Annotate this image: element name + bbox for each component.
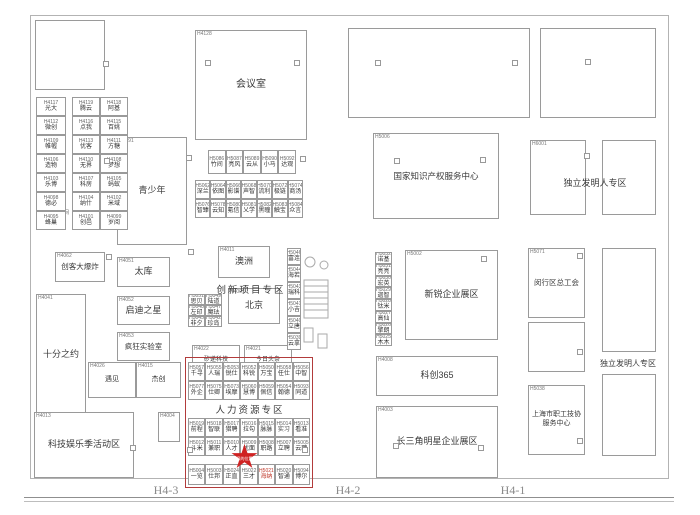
booth-cell: H5070流利 [257, 180, 272, 199]
empty-room-top-right [540, 28, 656, 118]
booth-name: 智臻 [197, 208, 209, 215]
door-marker-icon [577, 253, 583, 259]
booth-name: 触宝 [274, 208, 286, 215]
booth-cell: H5087亮风 [226, 150, 244, 174]
booth-name: 科锐 [243, 371, 255, 378]
room-name: 遇见 [89, 363, 135, 397]
door-marker-icon [300, 156, 306, 162]
booth-name: 氪信 [228, 208, 240, 215]
booth-name: 依图 [212, 189, 224, 196]
booth-name: 流利 [258, 189, 270, 196]
booth-cell: H5053锐仕 [223, 362, 240, 381]
booth-name: 博尔 [295, 474, 307, 481]
booth-name: 云从 [246, 162, 258, 169]
room-name: 疯狂实验室 [118, 333, 169, 360]
booth-cell: H5049陆道 [205, 294, 222, 305]
booth-grid-left-double: H4119腾云H4118阿基H4116点我H4115百姚H4113优客H4111… [72, 97, 128, 230]
room-name: 青少年 [118, 138, 186, 244]
booth-cell: H5030宏英 [375, 276, 392, 288]
booth-cell: H5042珍岛 [205, 316, 222, 327]
booth-name: 猎聘 [226, 427, 238, 434]
booth-cell: H4098德必 [36, 192, 66, 211]
door-marker-icon [577, 349, 583, 355]
booth-name: 声智 [243, 189, 255, 196]
booth-grid-hr-top: H5057千寻H5055人瑞H5053锐仕H5052科锐H5050万宝H5058… [188, 362, 310, 400]
booth-name: 看准 [295, 427, 307, 434]
booth-cell: H4095蜂巢 [36, 211, 66, 230]
booth-cell: H4101创邑 [72, 211, 100, 230]
booth-name: 蜂巢 [45, 220, 57, 227]
door-marker-icon [205, 60, 211, 66]
booth-cell: H5032诺基 [375, 252, 392, 264]
room-name: 上海市职工技协服务中心 [529, 386, 584, 454]
booth-name: 正直 [226, 474, 238, 481]
booth-cell: H5083触宝 [272, 199, 287, 218]
booth-grid-center-row: H5086竹间H5087亮风H5089云从H5090小马H5092达观 [208, 150, 296, 174]
booth-cell: H5014实习 [275, 418, 292, 437]
door-marker-icon [584, 153, 590, 159]
room-name: 国家知识产权服务中心 [374, 134, 498, 218]
booth-name: 非夕 [190, 321, 202, 327]
booth-name: 点我 [80, 125, 92, 132]
booth-name: 纳什 [80, 201, 92, 208]
booth-cell: H5043瑞科 [287, 282, 301, 299]
room-name: 澳洲 [219, 247, 269, 277]
booth-cell: H4113优客 [72, 135, 100, 154]
empty-room-right-col-b [602, 374, 656, 456]
booth-name: 智联 [208, 427, 220, 434]
booth-cell: H5011兼职 [205, 437, 222, 456]
booth-cell: H5025木木 [375, 334, 392, 346]
booth-cell: H4106造物 [36, 154, 66, 173]
booth-cell: H5084众言 [288, 199, 303, 218]
booth-name: 阿基 [108, 106, 120, 113]
booth-cell: H5046富连 [287, 248, 301, 265]
booth-name: 锐仕 [226, 371, 238, 378]
room-name: 杰创 [137, 363, 180, 397]
room-meet: H4026 遇见 [88, 362, 136, 398]
booth-cell: H5054翰德 [275, 381, 292, 400]
booth-name: 木木 [377, 340, 389, 346]
booth-cell: H5029迦智 [375, 287, 392, 299]
room-name: 科创365 [377, 357, 497, 395]
booth-name: 帷幄 [45, 144, 57, 151]
booth-cell: H5018智联 [205, 418, 222, 437]
room-name: 闵行区总工会 [529, 249, 584, 317]
booth-name: 岁阅 [108, 220, 120, 227]
booth-cell: H5074商汤 [288, 180, 303, 199]
booth-name: 职路 [260, 446, 272, 453]
booth-cell: H5077外企 [188, 381, 205, 400]
booth-cell: H5086竹间 [208, 150, 226, 174]
booth-cell: H5062深兰 [195, 180, 210, 199]
room-name: 会议室 [196, 31, 306, 139]
booth-name: 创邑 [80, 220, 92, 227]
exhibition-floor-plan: H6001 H4128 会议室 H4091 青少年 H4062 创客大爆炸 H4… [0, 0, 700, 515]
booth-name: 云知 [212, 208, 224, 215]
booth-cell: H5026擎朗 [375, 323, 392, 335]
booth-cell: H5094博尔 [293, 464, 310, 485]
booth-name: 立唐 [288, 324, 300, 331]
door-marker-icon [585, 59, 591, 65]
booth-name: 乐博 [45, 182, 57, 189]
booth-cell: H5045非夕 [188, 316, 205, 327]
booth-name: 云拿 [288, 341, 300, 348]
booth-name: 众言 [289, 208, 301, 215]
door-marker-icon [106, 254, 112, 260]
door-marker-icon [512, 60, 518, 66]
room-crazy-lab: H4053 疯狂实验室 [117, 332, 170, 361]
booth-cell: H5022三才 [240, 464, 257, 485]
independent-inventor-zone-label: 独立发明人专区 [535, 176, 655, 189]
booth-cell: H4104纳什 [72, 192, 100, 211]
room-new-star-zone: H5002 新锐企业展区 [405, 250, 498, 340]
booth-cell: H5039云拿 [287, 333, 301, 350]
booth-name: 腾云 [80, 106, 92, 113]
independent-inventor-zone-label-2: 独立发明人专区 [595, 358, 661, 369]
booth-cell: H5090小马 [261, 150, 279, 174]
booth-name: 万宝 [260, 371, 272, 378]
gate-label-h4-1: H4-1 [483, 483, 543, 498]
booth-name: 外企 [191, 390, 203, 397]
door-marker-icon [104, 158, 110, 164]
booth-cell: H5060慧博 [240, 381, 257, 400]
booth-grid-left-column: H4117光大H4112微创H4109帷幄H4106造物H4103乐博H4098… [36, 97, 66, 230]
booth-cell: H4115百姚 [100, 116, 128, 135]
booth-name: 拉勾 [243, 427, 255, 434]
booth-name: 人才 [226, 446, 238, 453]
booth-cell: H4103乐博 [36, 173, 66, 192]
booth-cell: H5040立唐 [287, 316, 301, 333]
booth-name: 小马 [264, 162, 276, 169]
booth-name: 造物 [45, 163, 57, 170]
booth-cell: H5081乂学 [241, 199, 256, 218]
room-maker-bigbang: H4062 创客大爆炸 [55, 252, 105, 282]
room-meeting: H4128 会议室 [195, 30, 307, 140]
booth-name: 实习 [278, 427, 290, 434]
booth-cell: H5066影谱 [226, 180, 241, 199]
booth-cell: H5092达观 [278, 150, 296, 174]
room-workers-service-center: H5038 上海市职工技协服务中心 [528, 385, 585, 455]
booth-name: 影谱 [228, 189, 240, 196]
booth-cell: H4119腾云 [72, 97, 100, 116]
booth-name: 任仕 [278, 371, 290, 378]
booth-grid-right-strip: H5032诺基H5031亮亮H5030宏英H5029迦智H5028钛米H5027… [375, 252, 392, 346]
booth-name: 光大 [45, 106, 57, 113]
booth-cell: H5020智通 [275, 464, 292, 485]
booth-cell: H5076智臻 [195, 199, 210, 218]
booth-name: 前程 [191, 427, 203, 434]
door-marker-icon [294, 60, 300, 66]
booth-name: 微创 [45, 125, 57, 132]
booth-name: 兼职 [208, 446, 220, 453]
door-marker-icon [103, 61, 109, 67]
booth-name: 仕邦 [208, 474, 220, 481]
booth-name: 无界 [80, 163, 92, 170]
booth-name: 深兰 [197, 189, 209, 196]
booth-cell: H5078云知 [210, 199, 225, 218]
door-marker-icon [481, 256, 487, 262]
booth-cell: H5058任仕 [275, 362, 292, 381]
room-ip-service-center: H5006 国家知识产权服务中心 [373, 133, 499, 219]
booth-grid-hr-middle: H5019前程H5018智联H5017猎聘H5016拉勾H5015脉脉H5014… [188, 418, 310, 456]
booth-name: 智通 [278, 474, 290, 481]
booth-cell: H5004一览 [188, 464, 205, 485]
door-marker-icon [187, 447, 193, 453]
door-marker-icon [186, 155, 192, 161]
booth-cell: H5089云从 [243, 150, 261, 174]
booth-cell: H5075仕卿 [205, 381, 222, 400]
booth-name: 翰德 [278, 390, 290, 397]
booth-name: 三才 [243, 474, 255, 481]
booth-cell: H5052科锐 [240, 362, 257, 381]
door-marker-icon [478, 445, 484, 451]
booth-name: 百姚 [108, 125, 120, 132]
room-kechuang-365: H4008 科创365 [376, 356, 498, 396]
room-name: 创客大爆炸 [56, 253, 104, 281]
room-name: 太库 [118, 258, 169, 286]
booth-name: 德必 [45, 201, 57, 208]
booth-name: 同道 [295, 390, 307, 397]
door-marker-icon [393, 443, 399, 449]
booth-name: 乂学 [243, 208, 255, 215]
empty-room-top-left [35, 20, 105, 90]
booth-name: 商汤 [289, 189, 301, 196]
booth-cell: H5017猎聘 [223, 418, 240, 437]
room-ten-minute: H4041 十分之约 [36, 294, 86, 416]
room-tus-star: H4052 启迪之星 [117, 296, 170, 325]
booth-name: 竹间 [211, 162, 223, 169]
booth-name: 珍岛 [207, 321, 219, 327]
booth-name: 千寻 [191, 371, 203, 378]
booth-cell: H5056中智 [293, 362, 310, 381]
booth-name: 瑞科 [288, 290, 300, 297]
booth-name: 一览 [191, 474, 203, 481]
stairs-icon [300, 248, 332, 352]
booth-cell: H5044海若 [287, 265, 301, 282]
empty-room-right-col-a [602, 248, 656, 352]
booth-name: 科房 [80, 182, 92, 189]
booth-grid-hr-bottom: H5004一览H5003仕邦H5024正直H5022三才H5021海纳H5020… [188, 464, 310, 485]
booth-cell: H5008职路 [258, 437, 275, 456]
booth-cell: H5073埃摩 [223, 381, 240, 400]
booth-name: 脉脉 [260, 427, 272, 434]
door-marker-icon [480, 157, 486, 163]
booth-name: 梦想 [108, 163, 120, 170]
booth-cell: H5003仕邦 [205, 464, 222, 485]
booth-name: 慧博 [243, 390, 255, 397]
booth-cell: H5080氪信 [226, 199, 241, 218]
booth-code: H6001 [532, 141, 547, 147]
door-marker-icon [375, 60, 381, 66]
booth-cell: H4110无界 [72, 154, 100, 173]
booth-name: 人瑞 [208, 371, 220, 378]
booth-cell: H4111方糖 [100, 135, 128, 154]
room-name: 新锐企业展区 [406, 251, 497, 339]
booth-name: 极链 [274, 189, 286, 196]
gate-label-h4-2: H4-2 [318, 483, 378, 498]
booth-name: 亮风 [228, 162, 240, 169]
booth-cell: H5057千寻 [188, 362, 205, 381]
booth-name: 黑瞳 [258, 208, 270, 215]
booth-cell: H5048左印 [188, 305, 205, 316]
booth-cell: H4118阿基 [100, 97, 128, 116]
booth-cell: H5082黑瞳 [257, 199, 272, 218]
room-tech-fun-zone: H4013 科技娱乐季活动区 [34, 412, 134, 478]
boundary-line-outer [24, 497, 674, 498]
booth-cell: H5021海纳 [258, 464, 275, 485]
booth-name: 海若 [288, 273, 300, 280]
booth-name: 小吉 [288, 307, 300, 314]
booth-name: 达观 [281, 162, 293, 169]
booth-cell: H5015脉脉 [258, 418, 275, 437]
door-marker-icon [577, 438, 583, 444]
booth-cell: H5050万宝 [258, 362, 275, 381]
booth-name: 优客 [80, 144, 92, 151]
door-marker-icon [188, 249, 194, 255]
booth-name: 佩信 [260, 390, 272, 397]
booth-code: H4004 [160, 413, 175, 419]
door-marker-icon [394, 158, 400, 164]
booth-name: 仕卿 [208, 390, 220, 397]
room-jiechuang: H4015 杰创 [136, 362, 181, 398]
booth-name: 中智 [295, 371, 307, 378]
empty-room-right-mid [528, 322, 585, 372]
booth-grid-stairs-column: H5046富连H5044海若H5043瑞科H5041小吉H5040立唐H5039… [287, 248, 301, 350]
door-marker-icon [302, 447, 308, 453]
booth-name: 富连 [288, 256, 300, 263]
gate-label-h4-3: H4-3 [136, 483, 196, 498]
booth-cell: H5031亮亮 [375, 264, 392, 276]
booth-cell: H4099岁阅 [100, 211, 128, 230]
booth-name: 米域 [108, 201, 120, 208]
booth-cell: H5041小吉 [287, 299, 301, 316]
hr-zone-label: 人力资源专区 [196, 402, 304, 416]
booth-cell: H4117光大 [36, 97, 66, 116]
booth-cell: H5051思贝 [188, 294, 205, 305]
booth-cell: H4109帷幄 [36, 135, 66, 154]
booth-grid-tiny: H5051思贝H5049陆道H5048左印H5047魔珐H5045非夕H5042… [188, 294, 222, 327]
booth-name: 海纳 [260, 474, 272, 481]
boundary-line-inner [24, 501, 674, 502]
booth-cell: H5068声智 [241, 180, 256, 199]
room-taiku: H4051 太库 [117, 257, 170, 287]
booth-name: 立聘 [278, 446, 290, 453]
booth-grid-center-block: H5062深兰H5064依图H5066影谱H5068声智H5070流利H5072… [195, 180, 303, 218]
booth-cell: H5064依图 [210, 180, 225, 199]
empty-room-top-center [348, 28, 530, 118]
room-name: 十分之约 [37, 295, 85, 415]
booth-cell: H5059佩信 [258, 381, 275, 400]
booth-name: 方糖 [108, 144, 120, 151]
room-name: 长三角明星企业展区 [377, 407, 497, 477]
room-yangtze-delta-zone: H4003 长三角明星企业展区 [376, 406, 498, 478]
room-australia: H4011 澳洲 [218, 246, 270, 278]
booth-cell: H5028钛米 [375, 299, 392, 311]
booth-cell: H5007立聘 [275, 437, 292, 456]
booth-name: 蚂蚁 [108, 182, 120, 189]
booth-cell: H5016拉勾 [240, 418, 257, 437]
booth-cell: H5055人瑞 [205, 362, 222, 381]
booth-cell: H5019前程 [188, 418, 205, 437]
room-name: 科技娱乐季活动区 [35, 413, 133, 477]
booth-cell: H4107科房 [72, 173, 100, 192]
booth-cell: H5013看准 [293, 418, 310, 437]
booth-cell: H4112微创 [36, 116, 66, 135]
booth-name: 埃摩 [226, 390, 238, 397]
booth-cell: H4116点我 [72, 116, 100, 135]
booth-cell: H4105蚂蚁 [100, 173, 128, 192]
booth-cell: H5093同道 [293, 381, 310, 400]
door-marker-icon [130, 445, 136, 451]
room-name: 启迪之星 [118, 297, 169, 324]
booth-cell: H5072极链 [272, 180, 287, 199]
booth-cell: H5047魔珐 [205, 305, 222, 316]
booth-cell: H4102米域 [100, 192, 128, 211]
room-h4004: H4004 [158, 412, 180, 442]
booth-cell: H5027高仙 [375, 311, 392, 323]
